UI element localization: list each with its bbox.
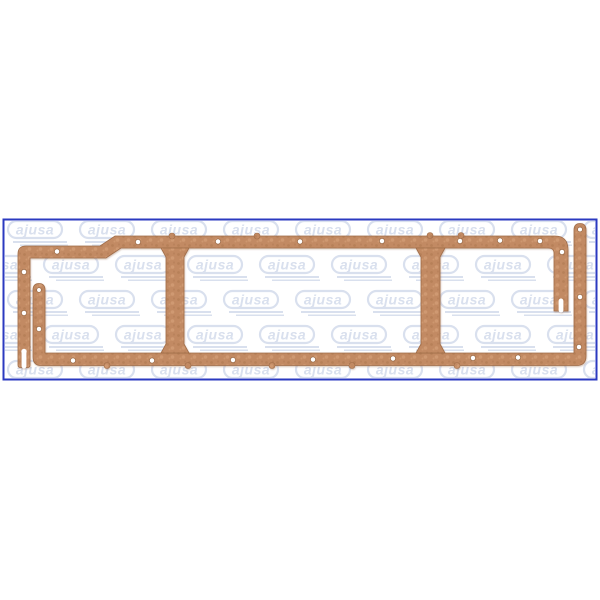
bolt-hole bbox=[54, 249, 59, 254]
edge-bump bbox=[169, 233, 175, 239]
edge-bump bbox=[427, 233, 433, 239]
bolt-hole bbox=[576, 344, 581, 349]
bolt-hole bbox=[515, 355, 520, 360]
edge-bump bbox=[185, 363, 191, 369]
bolt-hole bbox=[578, 227, 583, 232]
bolt-hole bbox=[537, 238, 542, 243]
bolt-hole bbox=[215, 239, 220, 244]
edge-bump bbox=[454, 363, 460, 369]
bolt-hole bbox=[230, 357, 235, 362]
bolt-hole bbox=[470, 355, 475, 360]
bolt-hole bbox=[390, 356, 395, 361]
edge-bump bbox=[458, 233, 464, 239]
bolt-hole bbox=[37, 288, 42, 293]
bolt-hole bbox=[149, 358, 154, 363]
bolt-hole bbox=[310, 357, 315, 362]
bolt-hole bbox=[21, 310, 26, 315]
edge-bump bbox=[254, 233, 260, 239]
bolt-hole bbox=[36, 326, 41, 331]
bolt-hole bbox=[457, 238, 462, 243]
edge-bump bbox=[104, 363, 110, 369]
bolt-hole bbox=[135, 239, 140, 244]
edge-bump bbox=[349, 363, 355, 369]
bolt-hole bbox=[70, 358, 75, 363]
bolt-hole bbox=[559, 249, 564, 254]
edge-bump bbox=[269, 363, 275, 369]
bolt-hole bbox=[21, 269, 26, 274]
product-image: ajusa ajusa ajusa bbox=[0, 0, 600, 600]
bolt-hole bbox=[497, 238, 502, 243]
bolt-hole bbox=[379, 238, 384, 243]
product-photo-page: ajusa ajusa ajusa bbox=[0, 0, 600, 600]
fork-slot-right bbox=[559, 299, 564, 313]
bolt-hole bbox=[297, 239, 302, 244]
bolt-hole bbox=[577, 294, 582, 299]
fork-slot-left bbox=[22, 351, 27, 369]
